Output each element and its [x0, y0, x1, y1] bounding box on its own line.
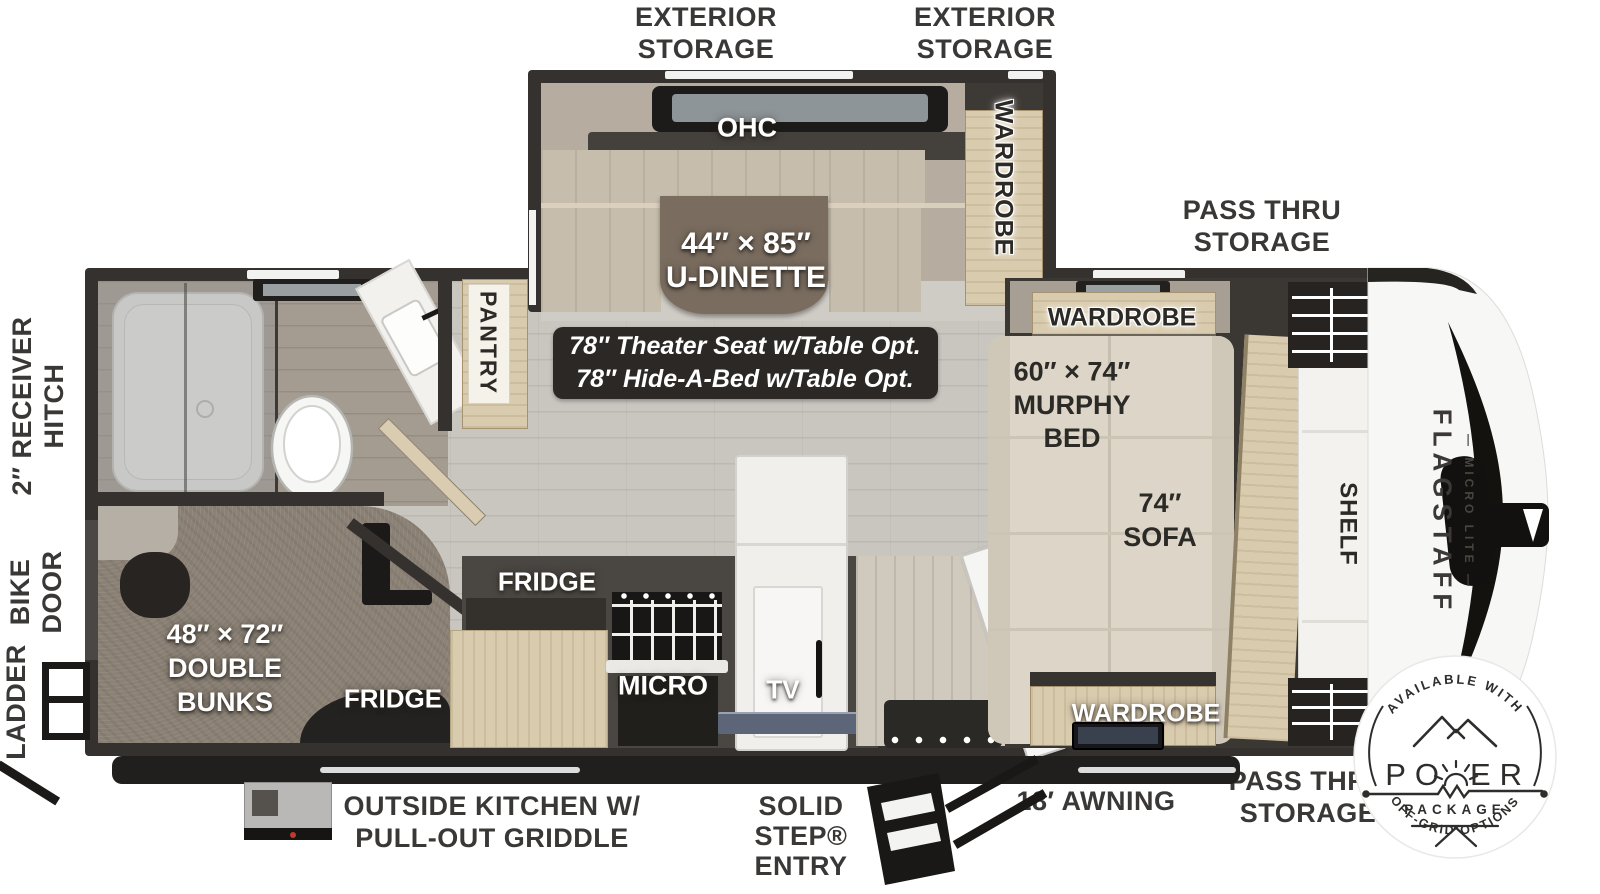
theater-option-1: 78″ Theater Seat w/Table Opt. [569, 332, 920, 360]
awning-roll [112, 756, 1240, 784]
bike-door-panel [85, 520, 98, 660]
bunk-room-floor-patch [98, 506, 178, 560]
power-package-badge: AVAILABLE WITH PO ER PACKAGE OFF-GRID OP… [1352, 654, 1558, 860]
label-wardrobe-top: WARDROBE [1048, 302, 1197, 335]
shower-glass [98, 283, 278, 504]
label-fridge: FRIDGE [498, 566, 596, 599]
range-grate [612, 598, 722, 662]
ladder-rung-icon [42, 696, 90, 703]
label-fridge-bunk: FRIDGE [344, 683, 442, 716]
outside-kitchen-burner [252, 790, 278, 816]
bunk-under-storage-left [120, 552, 190, 618]
label-theater-options: 78″ Theater Seat w/Table Opt.78″ Hide-A-… [569, 330, 920, 396]
label-tv: TV [766, 674, 799, 707]
window-top-wall-left [247, 270, 339, 279]
dinette-size: 44″ × 85″ [681, 227, 811, 260]
fridge-cabinet [450, 630, 608, 748]
label-micro-lite: — MICRO LITE — [1462, 434, 1476, 590]
label-exterior-storage-right: EXTERIOR STORAGE [914, 1, 1056, 65]
bathroom-window-glass [263, 284, 361, 296]
awning-highlight-left [320, 767, 580, 773]
label-wardrobe-slide: WARDROBE [987, 100, 1020, 257]
outside-kitchen-indicator [290, 832, 296, 838]
bunk-ladder-arm [362, 590, 432, 605]
dinette-bench-left [541, 150, 661, 312]
label-solid-step-entry: SOLID STEP® ENTRY [754, 791, 847, 881]
tv-island-handle [816, 640, 822, 698]
label-exterior-storage-left: EXTERIOR STORAGE [635, 1, 777, 65]
glass-top-sheen [1078, 727, 1158, 744]
range-knobs [612, 592, 722, 600]
sofa-seam-3 [988, 628, 1234, 631]
shower-glass-divider [184, 283, 187, 504]
label-murphy-name: MURPHY BED [1013, 389, 1130, 455]
label-double-bunks: 48″ × 72″ DOUBLE BUNKS [167, 617, 284, 719]
label-bike-door: BIKE DOOR [4, 551, 68, 634]
label-flagstaff: FLAGSTAFF [1427, 409, 1458, 616]
theater-option-2: 78″ Hide-A-Bed w/Table Opt. [576, 365, 913, 393]
label-micro: MICRO [618, 670, 708, 703]
entry-steps-icon [855, 745, 1055, 887]
label-dinette: 44″ × 85″U-DINETTE [666, 227, 826, 295]
floorplan-canvas: EXTERIOR STORAGE EXTERIOR STORAGE PASS T… [0, 0, 1600, 894]
dinette-name: U-DINETTE [666, 261, 826, 294]
tv-island-divider [737, 543, 846, 546]
label-receiver-hitch: 2″ RECEIVER HITCH [6, 317, 70, 496]
label-pass-thru-storage-top: PASS THRU STORAGE [1183, 194, 1342, 258]
sofa-seam-2 [988, 532, 1234, 535]
window-slide-side [529, 210, 536, 305]
bathroom-wall-right [438, 281, 452, 431]
bathroom-wall-bottom [98, 492, 384, 506]
label-pantry: PANTRY [472, 291, 505, 395]
window-slide-top-right [1008, 71, 1043, 79]
badge-power-left: PO [1385, 757, 1448, 792]
tv-screen [718, 712, 862, 734]
stabilizer-jack-icon [0, 761, 60, 806]
label-outside-kitchen: OUTSIDE KITCHEN W/ PULL-OUT GRIDDLE [344, 790, 641, 854]
window-slide-top-left [665, 71, 853, 79]
outside-kitchen-base [244, 828, 332, 840]
label-ohc: OHC [717, 112, 777, 145]
slide-window-glass [672, 94, 928, 122]
label-sofa: 74″ SOFA [1123, 486, 1197, 554]
entry-mat [884, 700, 1002, 748]
label-murphy-size: 60″ × 74″ [1014, 356, 1131, 389]
dinette-bench-right [829, 150, 921, 312]
label-ladder: LADDER [0, 644, 32, 760]
fridge-top [466, 598, 606, 634]
awning-highlight-right [1078, 767, 1236, 773]
sofa-arm-left [988, 336, 1010, 744]
badge-power-right: ER [1470, 757, 1531, 792]
